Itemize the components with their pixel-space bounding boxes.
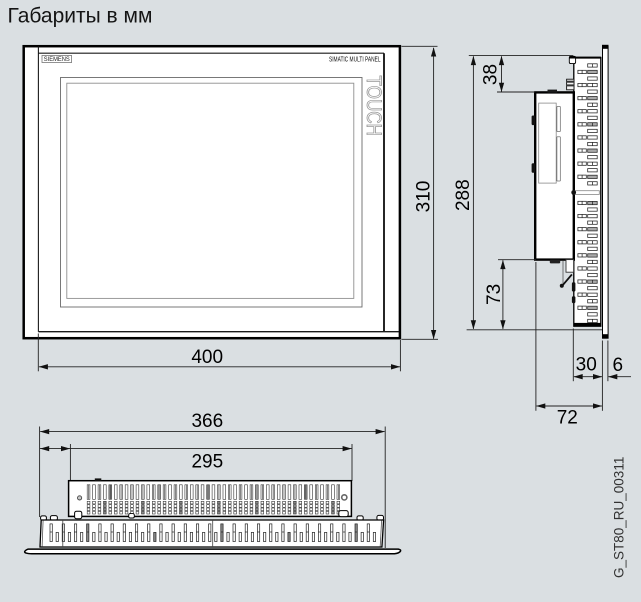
svg-text:TOUCH: TOUCH bbox=[362, 76, 385, 137]
svg-text:366: 366 bbox=[191, 411, 223, 432]
svg-text:295: 295 bbox=[191, 452, 223, 473]
svg-text:73: 73 bbox=[484, 284, 505, 305]
svg-text:6: 6 bbox=[613, 355, 624, 376]
svg-text:SIEMENS: SIEMENS bbox=[44, 56, 70, 63]
svg-text:310: 310 bbox=[414, 181, 435, 213]
svg-text:30: 30 bbox=[576, 355, 597, 376]
svg-text:288: 288 bbox=[453, 179, 474, 211]
svg-text:Габариты в мм: Габариты в мм bbox=[8, 5, 153, 28]
svg-text:72: 72 bbox=[557, 407, 578, 428]
svg-text:SIMATIC MULTI PANEL: SIMATIC MULTI PANEL bbox=[329, 55, 381, 64]
svg-text:38: 38 bbox=[480, 64, 501, 85]
svg-text:G_ST80_RU_00311: G_ST80_RU_00311 bbox=[612, 457, 627, 578]
svg-text:400: 400 bbox=[191, 347, 223, 368]
